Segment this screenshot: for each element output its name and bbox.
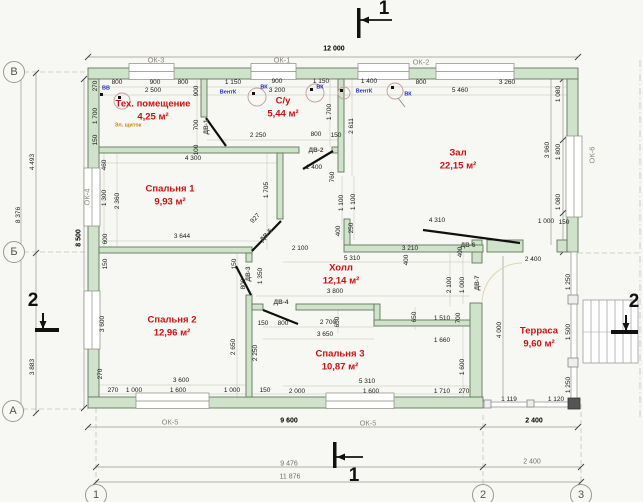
dim-label: 1 000 (126, 388, 142, 395)
dim-label: 3 600 (173, 378, 189, 385)
dim-label: 100 (194, 145, 201, 156)
dim-label: 11 876 (280, 474, 301, 481)
floor-plan-drawing (0, 0, 643, 502)
dim-label: 400 (404, 255, 411, 266)
dim-label: 1 000 (224, 388, 240, 395)
dim-label: 1 100 (339, 195, 346, 211)
room-name-bedroom-2: Спальня 2 (148, 315, 197, 325)
dim-label: 270 (93, 81, 100, 92)
dim-label: 1 600 (170, 388, 186, 395)
dim-label: 900 (272, 79, 283, 86)
floor-plan-page: 12 0008009008002 5001 1509001 1503 2001 … (0, 0, 643, 502)
dim-label: 700 (456, 313, 463, 324)
dim-label: 150 (93, 135, 100, 146)
door-label: ДВ-7 (475, 275, 482, 290)
utility-marker: ВК (316, 85, 323, 91)
room-name-bathroom: С/у (276, 96, 291, 106)
utility-marker: ВВ (102, 86, 110, 92)
dim-label: 2 400 (525, 418, 543, 425)
dim-label: 9 476 (280, 461, 298, 468)
dim-label: 1 150 (225, 80, 241, 87)
dim-label: 1 250 (566, 274, 573, 290)
dim-label: 8 376 (16, 207, 23, 223)
dim-label: 1 700 (93, 108, 100, 124)
dim-label: 800 (416, 80, 427, 87)
dim-label: 1 600 (363, 389, 379, 396)
room-area-hall-main: 22,15 м² (440, 161, 477, 171)
dim-label: 4 310 (429, 218, 445, 225)
dim-label: 1 000 (538, 219, 554, 226)
electrical-panel-label: Эл. щиток (114, 123, 141, 129)
dim-label: 3 260 (499, 80, 515, 87)
dim-label: 1 250 (566, 377, 573, 393)
room-name-hallway: Холл (329, 263, 353, 273)
dim-label: 3 650 (317, 332, 333, 339)
section-marker-2-left (35, 313, 59, 332)
window-label: ОК-5 (162, 418, 179, 426)
dim-label: 3 800 (327, 289, 343, 296)
window-label: ОК-4 (83, 189, 91, 206)
window-ok3 (129, 64, 174, 80)
dim-label: 2 100 (292, 246, 308, 253)
section-number-2: 2 (28, 290, 39, 312)
dim-label: 1 700 (327, 104, 334, 120)
dim-label: 150 (232, 259, 239, 270)
room-area-bathroom: 5,44 м² (267, 109, 298, 119)
dim-label: 1 500 (566, 324, 573, 340)
dimension-lines (18, 54, 584, 485)
window-ok5b (326, 393, 394, 409)
room-area-hallway: 12,14 м² (323, 276, 360, 286)
door-label: ДВ-1 (204, 119, 211, 134)
axis-marker-2: 2 (472, 484, 494, 502)
dim-label: 150 (258, 321, 269, 328)
dimension-ticks (18, 54, 584, 485)
dim-label: 9 600 (280, 418, 298, 425)
dim-label: 800 (112, 80, 123, 87)
dim-label: 2 000 (289, 389, 305, 396)
dim-label: 3 210 (402, 246, 418, 253)
door-label: ДВ-6 (460, 243, 475, 250)
dim-label: 150 (559, 220, 570, 227)
window-ok5a (136, 393, 209, 409)
dim-label: 4 000 (497, 322, 504, 338)
dim-label: 4 493 (30, 154, 37, 170)
dim-label: 3 883 (30, 359, 37, 375)
dim-label: 400 (336, 226, 343, 237)
window-label: ОК-6 (588, 147, 596, 164)
dim-label: 150 (103, 259, 110, 270)
section-number-2: 2 (629, 291, 640, 313)
room-name-bedroom-3: Спальня 3 (316, 349, 365, 359)
dim-label: 5 460 (452, 88, 468, 95)
utility-marker: ВентК (356, 89, 372, 95)
vent-circle (387, 83, 403, 99)
dim-label: 2 400 (523, 459, 541, 466)
dim-label: 650 (335, 317, 342, 328)
dim-label: 3 960 (545, 142, 552, 158)
dim-label: 2 650 (231, 339, 238, 355)
dim-label: 900 (150, 80, 161, 87)
axis-marker-А: А (2, 400, 24, 422)
door-label: ДВ-2 (308, 148, 323, 155)
door-label: ДВ-4 (273, 300, 288, 307)
room-name-tech-room: Тех. помещение (116, 99, 191, 109)
dim-label: 1 119 (501, 397, 517, 404)
dim-label: 1 300 (102, 190, 109, 206)
room-name-bedroom-1: Спальня 1 (146, 184, 195, 194)
dim-label: 1 120 (548, 397, 564, 404)
section-number-1: 1 (379, 0, 390, 20)
dim-label: 150 (260, 388, 271, 395)
dim-label: 270 (98, 369, 105, 380)
dim-label: 800 (278, 321, 289, 328)
dim-label: 2 360 (115, 193, 122, 209)
dim-label: 800 (311, 132, 322, 139)
window-ok2b (436, 64, 514, 80)
room-area-terrace: 9,60 м² (523, 339, 554, 349)
window-label: ОК-2 (413, 58, 430, 66)
axis-marker-3: 3 (570, 484, 592, 502)
room-area-bedroom-2: 12,96 м² (154, 328, 191, 338)
room-name-hall-main: Зал (449, 148, 466, 158)
room-area-bedroom-3: 10,87 м² (322, 362, 359, 372)
door-label: ДВ-3 (246, 266, 253, 281)
window-label: ОК-3 (148, 56, 165, 64)
dim-label: 150 (331, 133, 342, 140)
dim-label: 2 100 (447, 277, 454, 293)
utility-marker: ВК (260, 85, 267, 91)
utility-marker: ВентК (220, 90, 236, 96)
section-number-1: 1 (349, 465, 360, 487)
dim-label: 8 500 (76, 229, 83, 247)
dim-label: 1 350 (258, 268, 265, 284)
dim-label: 600 (103, 234, 110, 245)
dim-label: 250 (349, 223, 356, 234)
dim-label: 1 400 (306, 165, 322, 172)
dim-label: 900 (194, 86, 201, 97)
dim-label: 1 080 (556, 194, 563, 210)
dim-label: 3 644 (174, 234, 190, 241)
dim-label: 4 300 (185, 156, 201, 163)
window-ok6 (566, 136, 582, 217)
window-left-2 (84, 291, 100, 349)
dim-label: 460 (102, 160, 109, 171)
dim-label: 700 (194, 120, 201, 131)
axis-marker-Б: Б (3, 241, 25, 263)
dim-label: 2 250 (250, 133, 266, 140)
window-label: ОК-1 (274, 56, 291, 64)
dim-label: 1 080 (556, 86, 563, 102)
room-area-tech-room: 4,25 м² (137, 112, 168, 122)
window-label: ОК-5 (360, 419, 377, 427)
dim-label: 270 (459, 389, 470, 396)
dim-label: 3 200 (269, 88, 285, 95)
dim-label: 1 705 (264, 182, 271, 198)
dim-label: 1 800 (556, 144, 563, 160)
axis-marker-1: 1 (85, 484, 107, 502)
dim-label: 2 611 (349, 118, 356, 134)
room-name-terrace: Терраса (520, 326, 558, 336)
dim-label: 5 310 (359, 379, 375, 386)
dim-label: 270 (108, 388, 119, 395)
axis-marker-В: В (3, 61, 25, 83)
dim-label: 1 100 (351, 194, 358, 210)
dim-label: 800 (178, 80, 189, 87)
dim-label: 1 710 (434, 389, 450, 396)
dim-label: 3 600 (100, 316, 107, 332)
dim-label: 2 250 (253, 345, 260, 361)
door-dv7-swing-arc (482, 263, 522, 303)
dim-label: 650 (412, 312, 419, 323)
dim-label: 1 510 (434, 316, 450, 323)
dim-label: 1 660 (434, 338, 450, 345)
room-area-bedroom-1: 9,93 м² (154, 197, 185, 207)
dim-label: 12 000 (323, 46, 344, 53)
dim-label: 1 600 (460, 359, 467, 375)
utility-marker: ВК (404, 92, 411, 98)
dim-label: 2 500 (145, 88, 161, 95)
dim-label: 760 (330, 172, 337, 183)
dim-label: 1 000 (460, 277, 467, 293)
dim-label: 1 400 (361, 79, 377, 86)
dim-label: 2 400 (525, 257, 541, 264)
